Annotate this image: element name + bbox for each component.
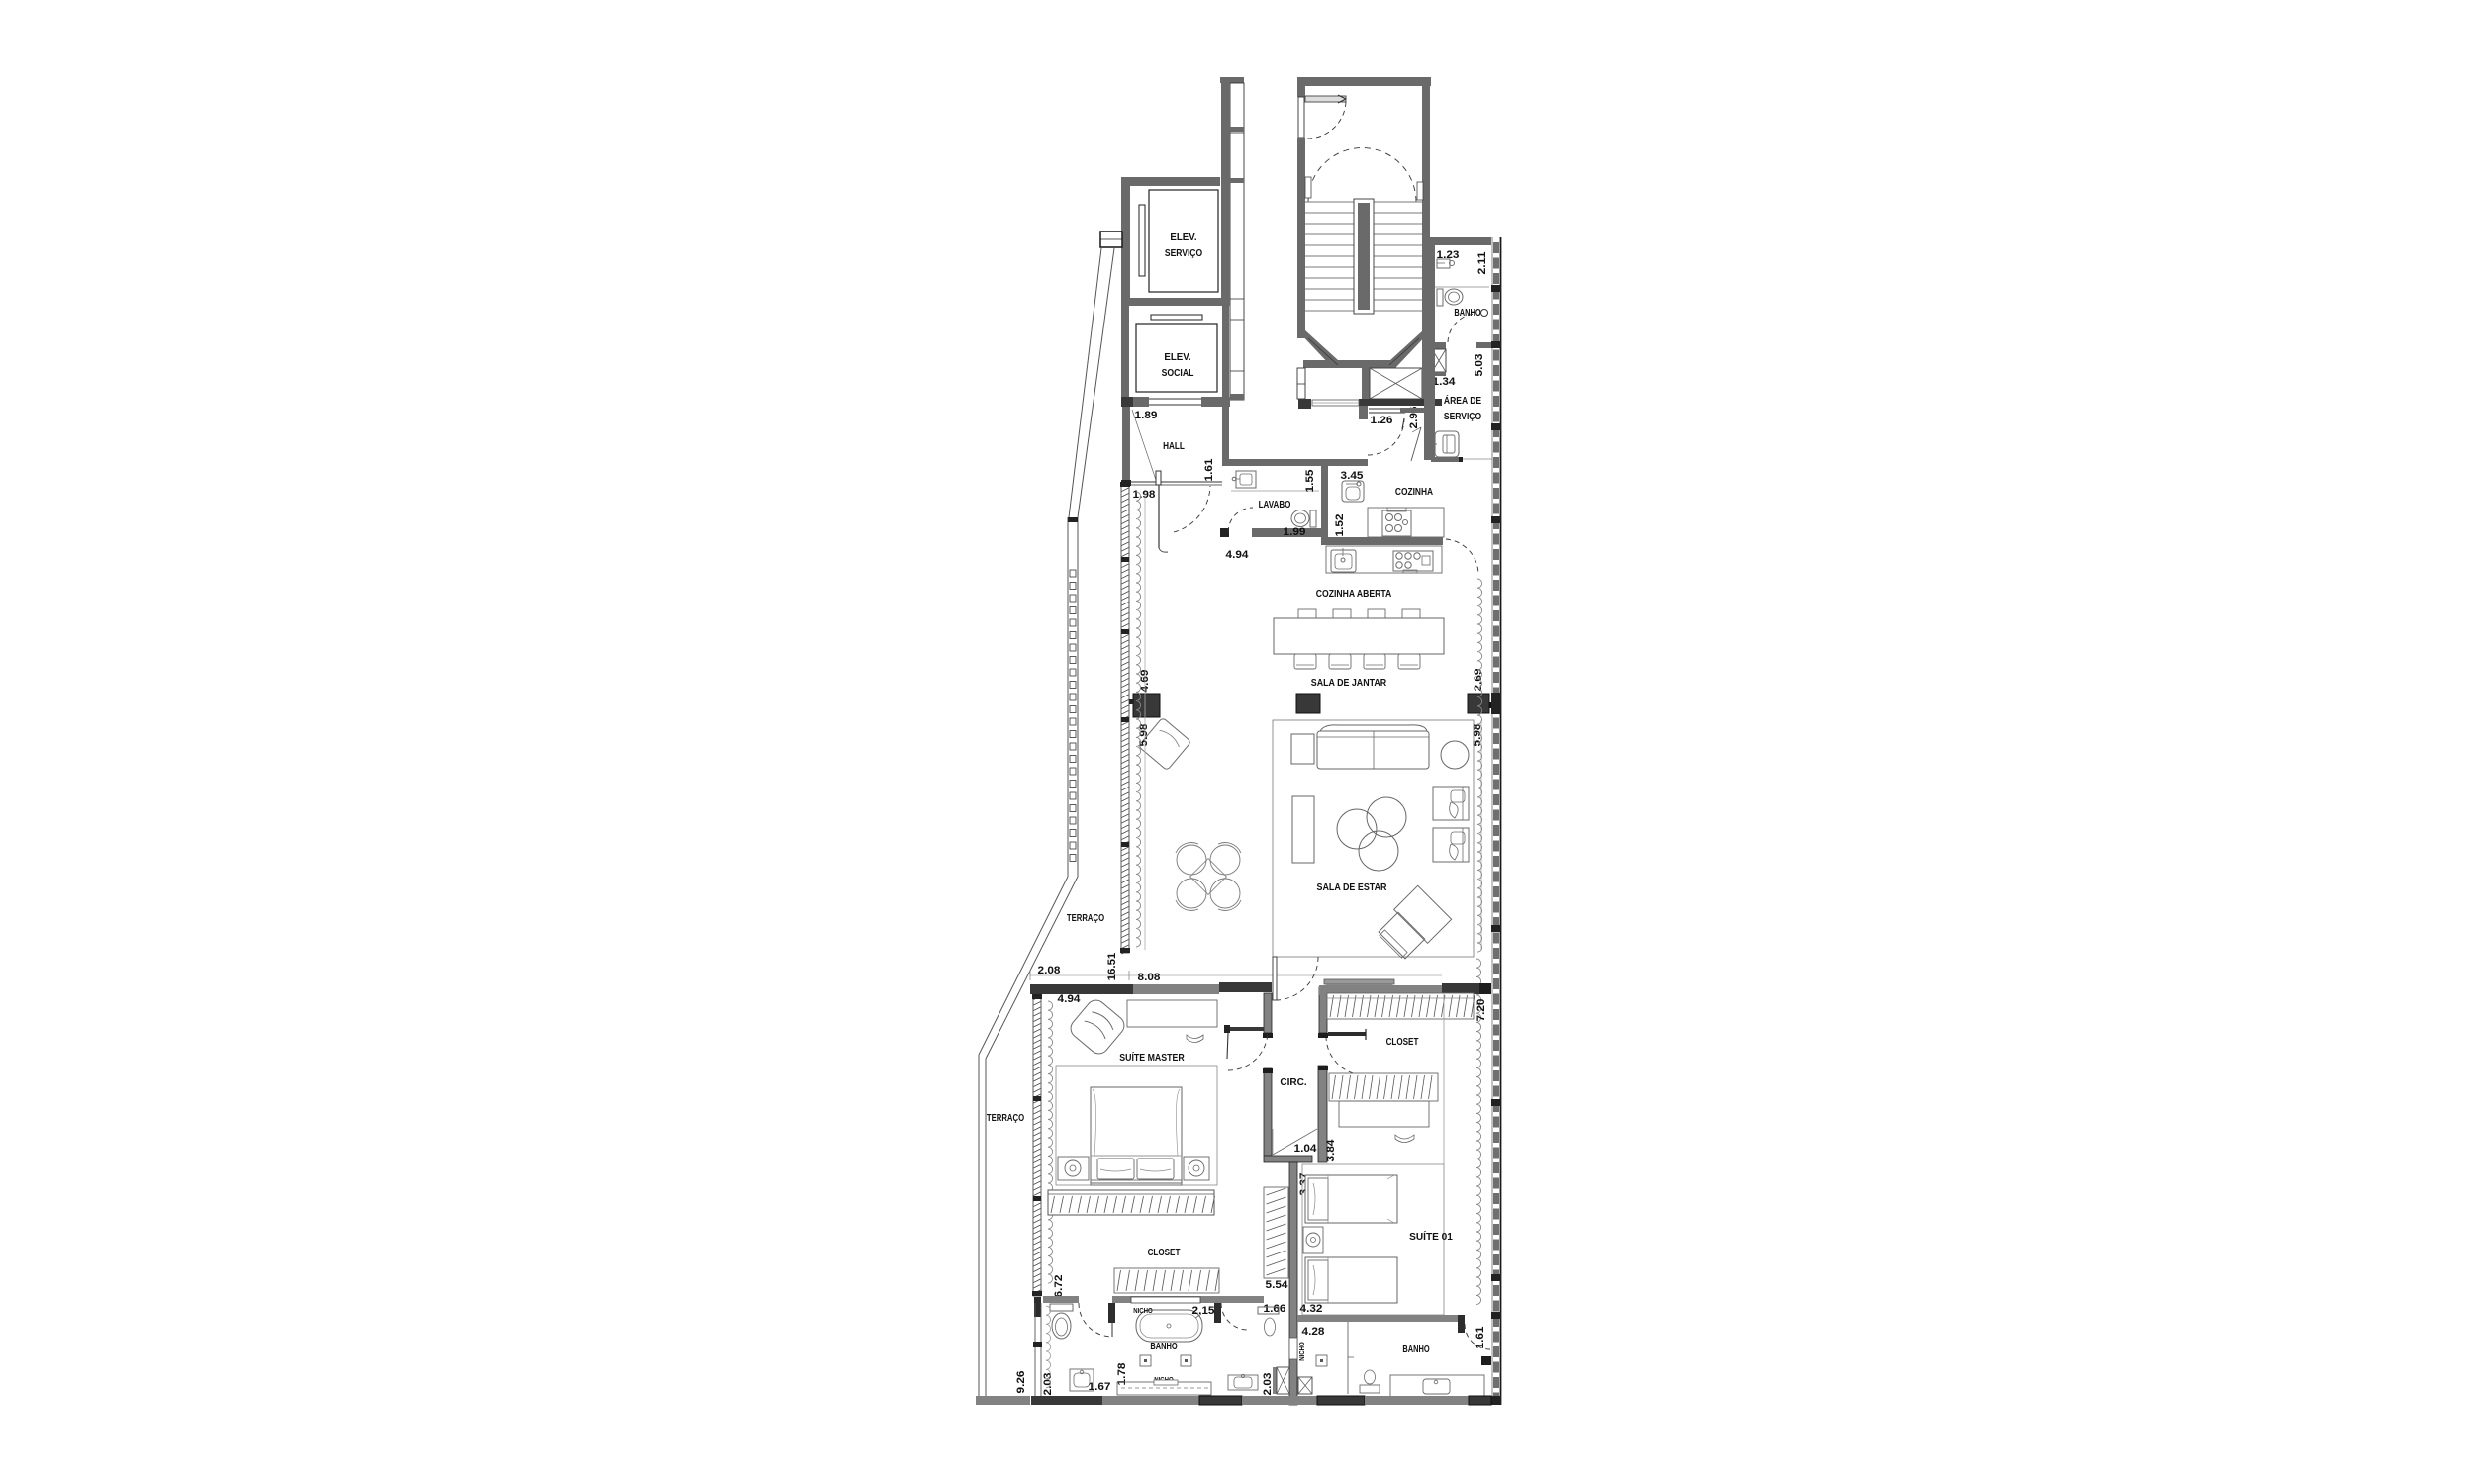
svg-text:4.94: 4.94 <box>1058 993 1082 1005</box>
svg-text:2.03: 2.03 <box>1262 1373 1274 1396</box>
svg-text:NICHO: NICHO <box>1133 1306 1153 1315</box>
svg-text:1.52: 1.52 <box>1334 514 1346 537</box>
svg-text:7.20: 7.20 <box>1475 999 1487 1022</box>
svg-text:1.98: 1.98 <box>1133 489 1156 501</box>
svg-text:SUÍTE MASTER: SUÍTE MASTER <box>1119 1051 1185 1064</box>
svg-text:BANHO: BANHO <box>1402 1344 1429 1355</box>
svg-text:2.15: 2.15 <box>1192 1305 1215 1317</box>
svg-text:3.84: 3.84 <box>1325 1139 1337 1162</box>
svg-text:LAVABO: LAVABO <box>1259 499 1291 510</box>
svg-text:4.94: 4.94 <box>1226 549 1250 561</box>
svg-text:SOCIAL: SOCIAL <box>1162 367 1194 379</box>
svg-text:9.26: 9.26 <box>1015 1371 1027 1394</box>
svg-text:16.51: 16.51 <box>1106 953 1118 981</box>
svg-text:SALA DE ESTAR: SALA DE ESTAR <box>1317 881 1387 893</box>
svg-text:COZINHA ABERTA: COZINHA ABERTA <box>1316 588 1392 600</box>
svg-text:TERRAÇO: TERRAÇO <box>1067 912 1104 924</box>
svg-text:ÁREA DE: ÁREA DE <box>1444 394 1481 407</box>
svg-text:1.26: 1.26 <box>1371 415 1393 426</box>
svg-text:6.72: 6.72 <box>1053 1275 1065 1298</box>
svg-text:CLOSET: CLOSET <box>1148 1247 1181 1258</box>
svg-text:1.89: 1.89 <box>1135 410 1158 421</box>
svg-text:3.45: 3.45 <box>1341 470 1364 482</box>
svg-text:8.08: 8.08 <box>1138 972 1161 983</box>
svg-text:2.11: 2.11 <box>1476 252 1488 275</box>
svg-text:4.32: 4.32 <box>1300 1303 1323 1315</box>
svg-text:SERVIÇO: SERVIÇO <box>1444 411 1481 422</box>
svg-text:SUÍTE 01: SUÍTE 01 <box>1409 1230 1453 1243</box>
svg-text:COZINHA: COZINHA <box>1395 486 1434 498</box>
svg-text:ELEV.: ELEV. <box>1164 351 1190 363</box>
svg-text:1.61: 1.61 <box>1475 1327 1486 1349</box>
svg-text:SERVIÇO: SERVIÇO <box>1165 247 1202 259</box>
svg-text:1.04: 1.04 <box>1294 1143 1318 1155</box>
svg-text:1.66: 1.66 <box>1264 1303 1286 1315</box>
svg-text:1.61: 1.61 <box>1203 459 1215 482</box>
svg-text:5.03: 5.03 <box>1474 354 1485 377</box>
svg-text:1.23: 1.23 <box>1437 249 1460 261</box>
svg-text:TERRAÇO: TERRAÇO <box>987 1112 1024 1124</box>
svg-text:CLOSET: CLOSET <box>1386 1036 1419 1048</box>
svg-text:2.08: 2.08 <box>1038 965 1061 976</box>
svg-text:HALL: HALL <box>1163 440 1185 452</box>
svg-text:BANHO: BANHO <box>1454 307 1480 319</box>
svg-text:ELEV.: ELEV. <box>1170 232 1196 243</box>
svg-text:BANHO: BANHO <box>1150 1341 1177 1352</box>
svg-text:5.54: 5.54 <box>1266 1279 1289 1291</box>
svg-text:1.99: 1.99 <box>1284 526 1306 538</box>
svg-text:NICHO: NICHO <box>1297 1342 1306 1361</box>
svg-text:SALA DE JANTAR: SALA DE JANTAR <box>1311 677 1387 689</box>
svg-text:1.34: 1.34 <box>1433 376 1457 388</box>
svg-text:1.55: 1.55 <box>1304 470 1316 493</box>
svg-text:1.67: 1.67 <box>1089 1381 1111 1393</box>
svg-text:2.03: 2.03 <box>1042 1373 1054 1396</box>
svg-text:CIRC.: CIRC. <box>1280 1076 1306 1088</box>
svg-text:4.28: 4.28 <box>1302 1326 1325 1338</box>
